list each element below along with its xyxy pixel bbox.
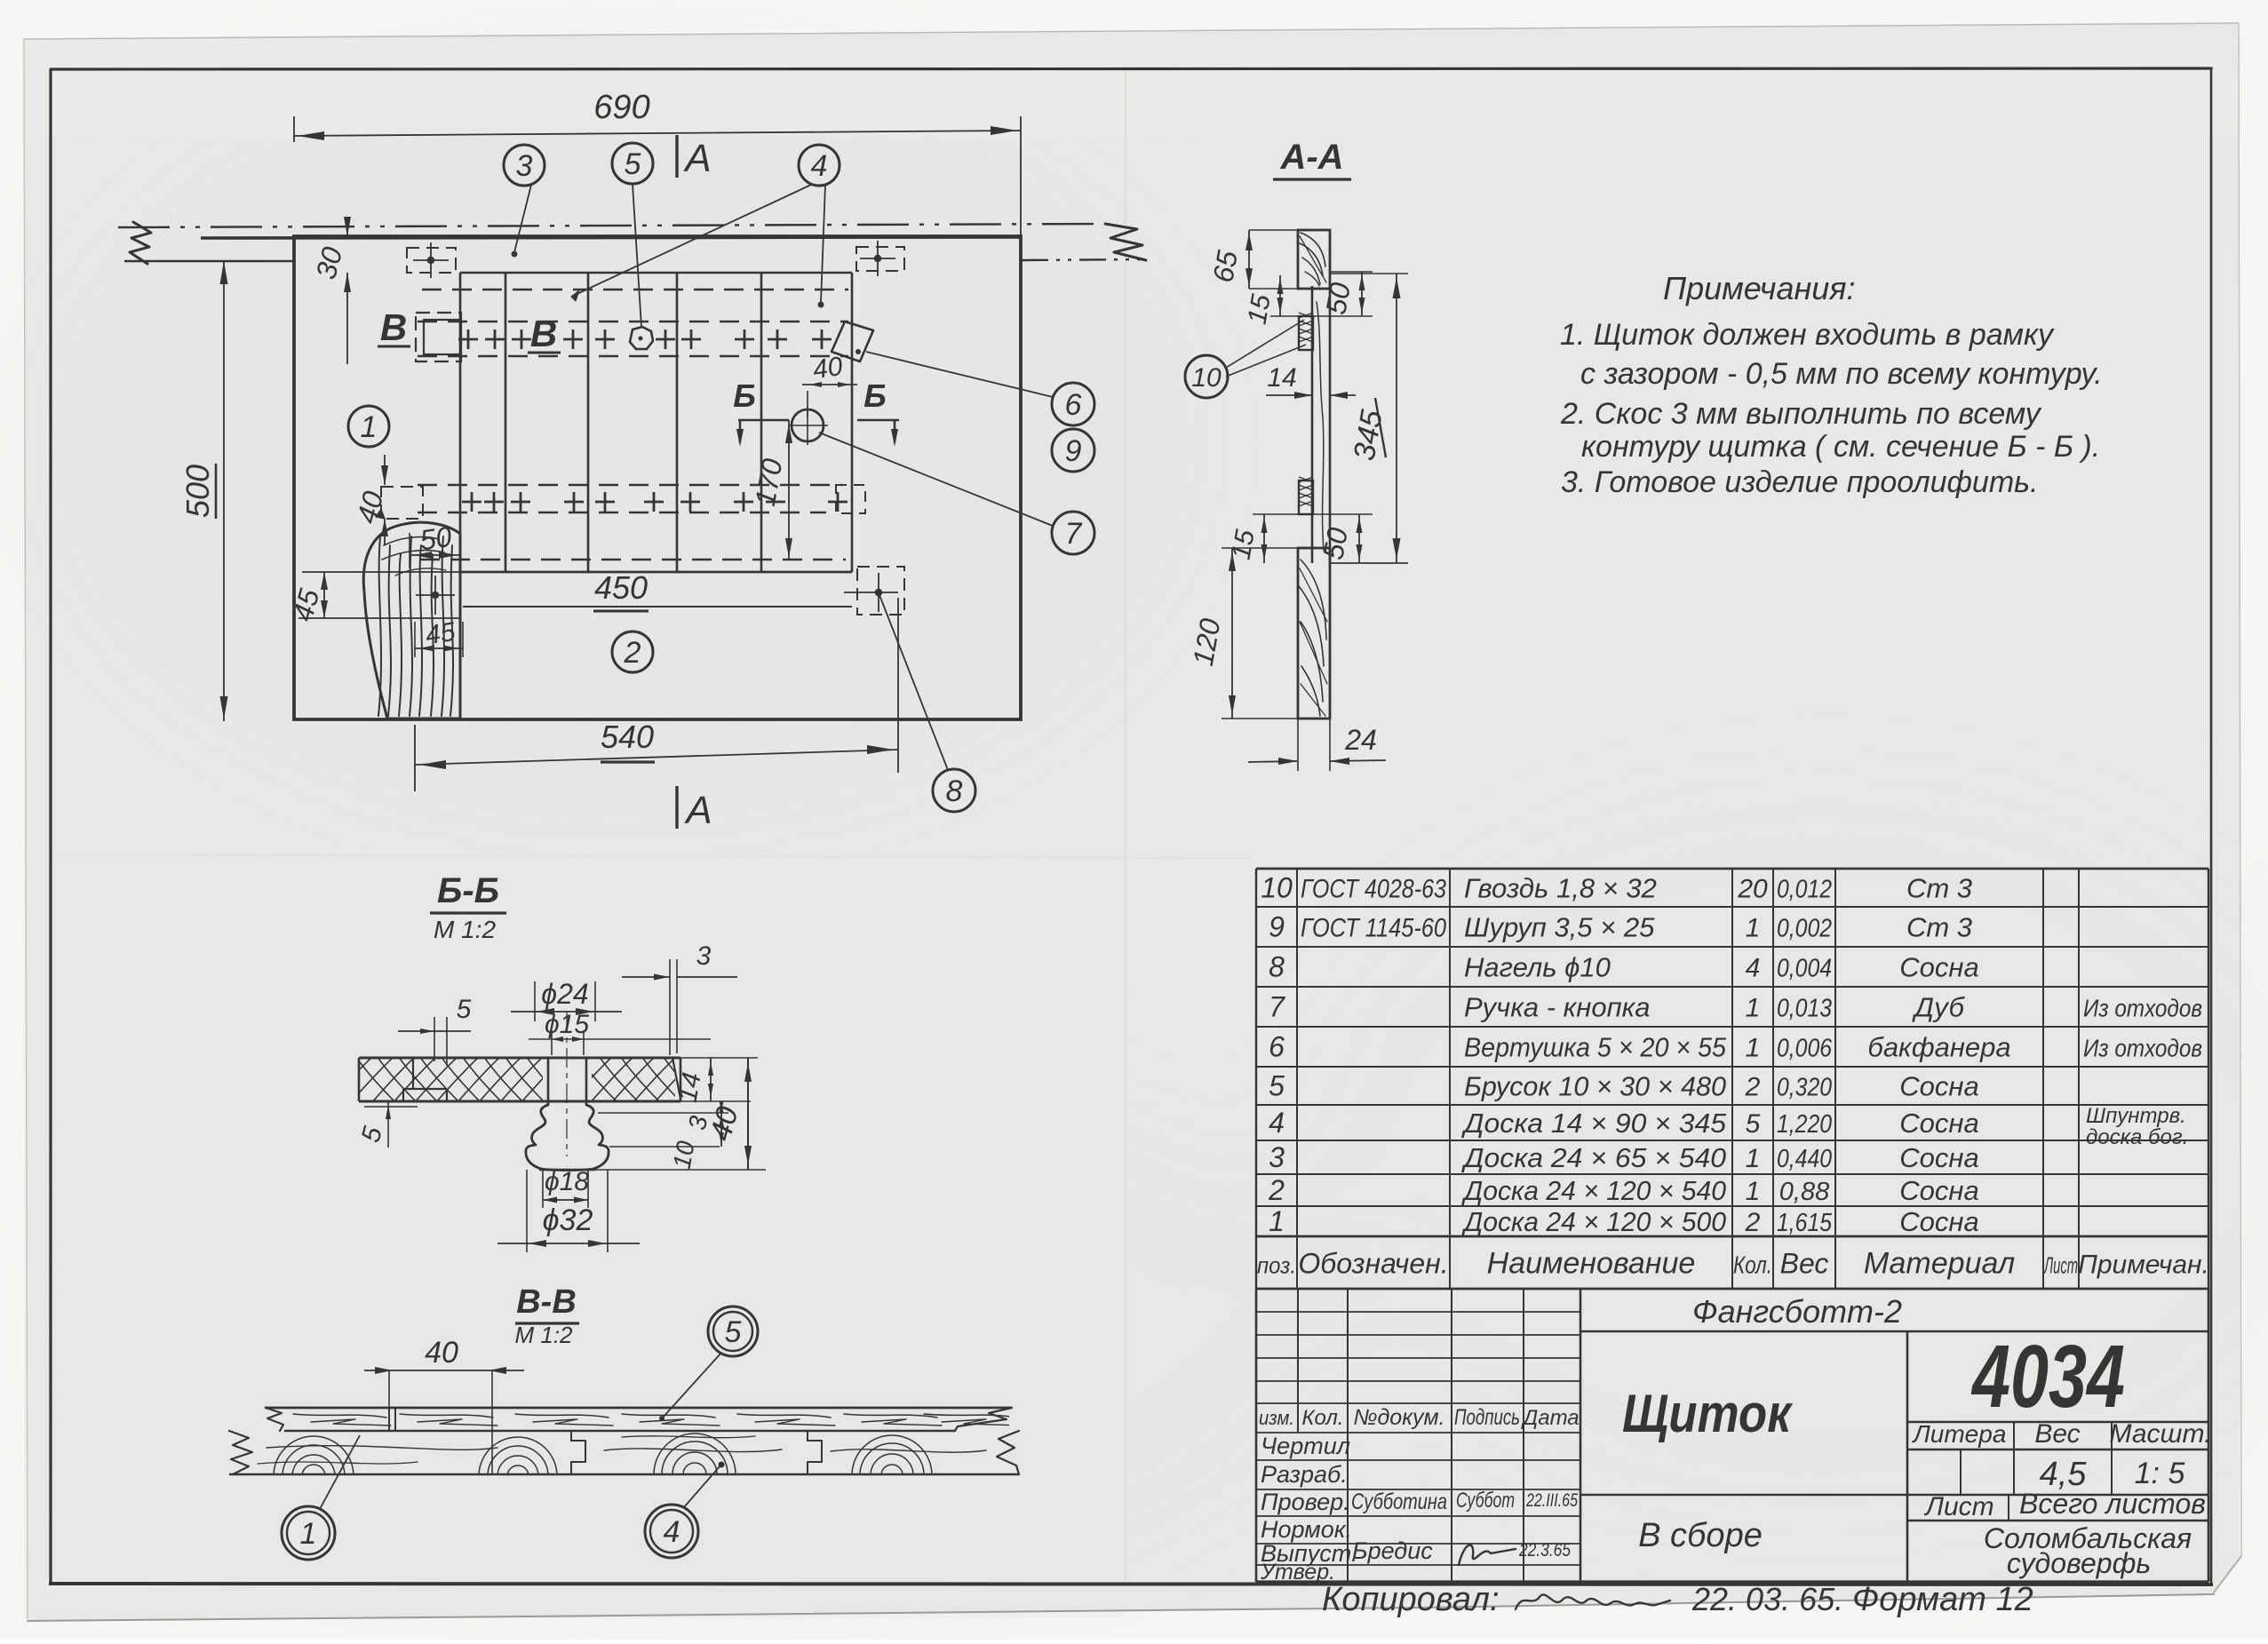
svg-text:ϕ18: ϕ18 [545, 1167, 589, 1196]
svg-text:4: 4 [1746, 954, 1761, 983]
svg-text:Провер.: Провер. [1261, 1489, 1350, 1515]
svg-text:Чертил: Чертил [1261, 1433, 1350, 1459]
svg-text:1,615: 1,615 [1777, 1209, 1833, 1237]
svg-text:2: 2 [1745, 1208, 1761, 1237]
svg-text:4034: 4034 [1970, 1327, 2125, 1426]
svg-text:Подпись: Подпись [1454, 1405, 1520, 1430]
svg-text:0,006: 0,006 [1777, 1035, 1833, 1063]
svg-text:ГОСТ 4028-63: ГОСТ 4028-63 [1301, 875, 1446, 904]
svg-text:Всего листов: Всего листов [2019, 1488, 2206, 1520]
svg-text:Фангсботт-2: Фангсботт-2 [1692, 1293, 1902, 1330]
svg-text:20: 20 [1737, 875, 1768, 904]
svg-text:0,012: 0,012 [1777, 876, 1832, 904]
svg-text:поз.: поз. [1257, 1252, 1296, 1279]
svg-text:5: 5 [1746, 1109, 1761, 1139]
svg-text:0,004: 0,004 [1777, 955, 1832, 983]
svg-text:Ст 3: Ст 3 [1906, 912, 1972, 943]
svg-text:ϕ32: ϕ32 [543, 1203, 593, 1237]
svg-text:Разраб.: Разраб. [1261, 1461, 1348, 1488]
svg-text:Масшт.: Масшт. [2110, 1419, 2212, 1449]
svg-text:500: 500 [179, 465, 216, 518]
svg-text:№докум.: №докум. [1353, 1405, 1444, 1430]
svg-text:Б-Б: Б-Б [437, 871, 499, 910]
svg-text:А: А [682, 137, 711, 180]
svg-text:Субботина: Субботина [1351, 1489, 1447, 1514]
svg-text:Б: Б [733, 377, 756, 414]
svg-text:Нагель ϕ10: Нагель ϕ10 [1464, 952, 1611, 983]
svg-text:10: 10 [1191, 363, 1222, 393]
svg-text:Вертушка 5 × 20 × 55: Вертушка 5 × 20 × 55 [1464, 1032, 1727, 1063]
svg-text:14: 14 [672, 1070, 706, 1105]
svg-text:1: 1 [1269, 1205, 1285, 1237]
svg-text:Вес: Вес [2034, 1419, 2080, 1449]
svg-text:3: 3 [1269, 1141, 1285, 1173]
svg-text:Кол.: Кол. [1733, 1251, 1772, 1279]
svg-text:9: 9 [1065, 434, 1082, 468]
svg-text:4: 4 [1269, 1107, 1285, 1139]
svg-text:Из отходов: Из отходов [2083, 995, 2202, 1022]
svg-text:Доска 14 × 90 × 345: Доска 14 × 90 × 345 [1461, 1108, 1727, 1139]
svg-text:Из отходов: Из отходов [2083, 1035, 2202, 1062]
svg-text:1: 1 [1746, 994, 1761, 1023]
svg-text:доска бог.: доска бог. [2086, 1125, 2188, 1149]
svg-text:А: А [683, 789, 712, 832]
svg-text:15: 15 [1242, 292, 1276, 327]
svg-text:22.III.65: 22.III.65 [1525, 1490, 1578, 1511]
svg-text:Суббот: Суббот [1456, 1489, 1515, 1513]
svg-text:1: 1 [1746, 1034, 1761, 1063]
svg-text:Кол.: Кол. [1301, 1406, 1343, 1430]
svg-text:ϕ15: ϕ15 [545, 1010, 589, 1039]
svg-text:1: 1 [300, 1517, 317, 1551]
svg-text:14: 14 [1267, 363, 1296, 393]
svg-text:Бредис: Бредис [1352, 1537, 1433, 1564]
svg-text:Доска 24 × 120 × 540: Доска 24 × 120 × 540 [1461, 1175, 1726, 1206]
svg-text:Сосна: Сосна [1899, 1206, 1978, 1237]
svg-text:10: 10 [1261, 872, 1293, 904]
svg-text:6: 6 [1065, 388, 1082, 422]
svg-text:9: 9 [1269, 911, 1285, 943]
svg-text:65: 65 [1206, 248, 1244, 285]
svg-text:0,013: 0,013 [1777, 995, 1832, 1023]
svg-text:10: 10 [668, 1139, 700, 1171]
svg-text:4: 4 [664, 1515, 680, 1549]
svg-text:3: 3 [696, 941, 712, 971]
svg-text:ϕ24: ϕ24 [541, 978, 588, 1010]
svg-text:изм.: изм. [1259, 1407, 1294, 1429]
svg-text:В-В: В-В [516, 1283, 577, 1321]
svg-text:24: 24 [1344, 724, 1377, 756]
svg-text:5: 5 [457, 995, 472, 1024]
svg-text:Шуруп 3,5 × 25: Шуруп 3,5 × 25 [1464, 912, 1655, 943]
svg-text:Лист: Лист [1923, 1492, 1993, 1521]
svg-text:Материал: Материал [1864, 1247, 2015, 1281]
svg-text:В: В [380, 306, 407, 348]
svg-text:1,220: 1,220 [1777, 1110, 1832, 1139]
svg-text:4: 4 [811, 149, 828, 183]
svg-text:М 1:2: М 1:2 [434, 916, 496, 943]
svg-text:Сосна: Сосна [1899, 1142, 1978, 1173]
svg-text:Сосна: Сосна [1899, 1071, 1978, 1102]
svg-text:7: 7 [1065, 517, 1083, 551]
svg-text:Вес: Вес [1780, 1248, 1829, 1280]
svg-text:Ст 3: Ст 3 [1906, 873, 1972, 904]
svg-text:8: 8 [1269, 951, 1285, 983]
svg-text:с зазором - 0,5 мм по всему: с зазором - 0,5 мм по всему контуру. [1580, 357, 2103, 391]
svg-text:3. Готовое изделие проолифит: 3. Готовое изделие проолифить. [1561, 465, 2039, 499]
svg-text:450: 450 [594, 569, 648, 606]
svg-text:Сосна: Сосна [1899, 1108, 1978, 1139]
svg-text:1: 1 [361, 410, 378, 444]
svg-text:Литера: Литера [1912, 1420, 2007, 1448]
svg-text:40: 40 [811, 352, 845, 385]
svg-text:Копировал:: Копировал: [1322, 1581, 1500, 1618]
svg-text:6: 6 [1269, 1031, 1285, 1063]
svg-text:1: 5: 1: 5 [2135, 1457, 2185, 1490]
svg-text:бакфанера: бакфанера [1867, 1032, 2010, 1063]
svg-text:540: 540 [601, 719, 654, 755]
svg-text:1: 1 [1746, 1144, 1761, 1173]
svg-text:22.3.65: 22.3.65 [1518, 1540, 1571, 1561]
svg-text:В: В [530, 313, 557, 354]
svg-text:А-А: А-А [1279, 138, 1343, 177]
svg-text:5: 5 [725, 1315, 742, 1349]
svg-text:Примечания:: Примечания: [1663, 270, 1856, 306]
svg-text:ГОСТ 1145-60: ГОСТ 1145-60 [1301, 914, 1446, 943]
svg-text:Сосна: Сосна [1899, 952, 1978, 983]
svg-text:2: 2 [624, 636, 641, 670]
svg-text:3: 3 [516, 149, 533, 183]
svg-text:8: 8 [946, 774, 963, 808]
svg-text:Ручка - кнопка: Ручка - кнопка [1464, 992, 1651, 1023]
svg-text:1: 1 [1746, 914, 1761, 943]
svg-text:50: 50 [1319, 280, 1357, 317]
svg-text:0,440: 0,440 [1777, 1145, 1832, 1173]
svg-text:Б: Б [863, 377, 887, 414]
svg-text:40: 40 [425, 1336, 458, 1370]
svg-text:Лист: Лист [2043, 1252, 2078, 1279]
svg-text:Гвоздь 1,8 × 32: Гвоздь 1,8 × 32 [1464, 873, 1657, 904]
svg-text:Наименование: Наименование [1487, 1247, 1696, 1281]
svg-text:Дата: Дата [1520, 1406, 1579, 1430]
svg-text:690: 690 [593, 89, 649, 126]
svg-text:В сборе: В сборе [1638, 1517, 1763, 1554]
svg-text:Формат 12: Формат 12 [1852, 1581, 2033, 1618]
svg-text:2: 2 [1745, 1073, 1761, 1102]
svg-text:Шпунтрв.: Шпунтрв. [2086, 1104, 2186, 1128]
svg-text:Нормок.: Нормок. [1261, 1516, 1352, 1543]
svg-text:Сосна: Сосна [1899, 1175, 1978, 1206]
svg-text:0,002: 0,002 [1777, 915, 1832, 943]
svg-text:Брусок 10 × 30 × 480: Брусок 10 × 30 × 480 [1464, 1071, 1726, 1102]
svg-text:Дуб: Дуб [1912, 992, 1965, 1023]
svg-text:5: 5 [1269, 1070, 1285, 1102]
svg-text:Обозначен.: Обозначен. [1298, 1248, 1448, 1280]
svg-text:1. Щиток должен входить в ра: 1. Щиток должен входить в рамку [1560, 318, 2055, 352]
svg-text:1: 1 [1746, 1177, 1761, 1206]
svg-text:2. Скос 3 мм выполнить по: 2. Скос 3 мм выполнить по всему [1560, 397, 2042, 431]
svg-text:Щиток: Щиток [1622, 1384, 1793, 1443]
svg-text:Примечан.: Примечан. [2078, 1251, 2209, 1280]
svg-text:0,320: 0,320 [1777, 1074, 1832, 1102]
svg-text:судоверфь: судоверфь [2007, 1547, 2151, 1579]
svg-text:7: 7 [1269, 991, 1285, 1023]
svg-text:2: 2 [1268, 1174, 1285, 1206]
svg-text:5: 5 [625, 147, 641, 181]
svg-text:Доска 24 × 65 × 540: Доска 24 × 65 × 540 [1461, 1142, 1726, 1173]
svg-text:Доска 24 × 120 × 500: Доска 24 × 120 × 500 [1461, 1206, 1726, 1237]
svg-text:контуру щитка ( см. сечение: контуру щитка ( см. сечение Б - Б ). [1581, 430, 2100, 464]
svg-text:0,88: 0,88 [1779, 1178, 1829, 1206]
svg-text:М 1:2: М 1:2 [514, 1322, 573, 1348]
svg-text:22. 03. 65.: 22. 03. 65. [1691, 1581, 1843, 1617]
svg-text:50: 50 [1317, 525, 1354, 562]
